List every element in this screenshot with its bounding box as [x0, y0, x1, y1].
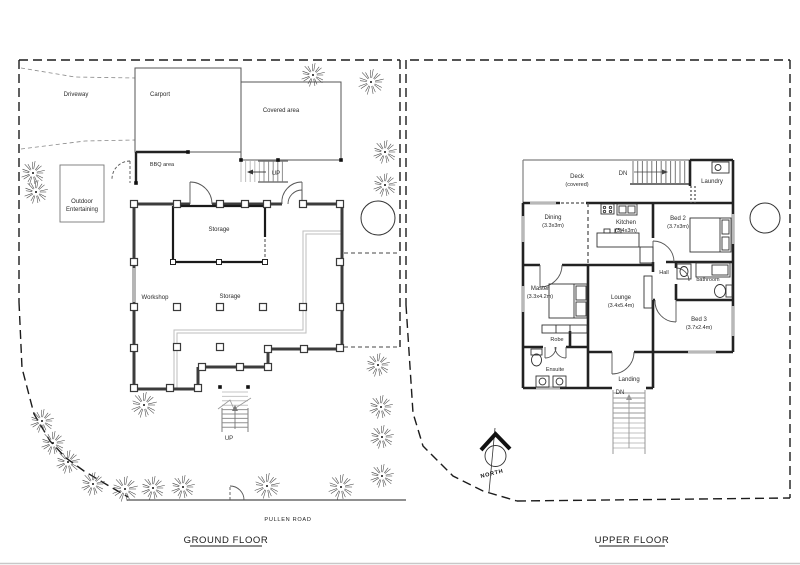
label-dining: Dining [544, 215, 561, 221]
label-deck-line1: Deck [570, 174, 585, 180]
label-landing: Landing [618, 377, 639, 383]
upper-stairs-bottom-extras [613, 390, 645, 454]
outdoor-entertaining-outline [60, 165, 104, 222]
label-carport: Carport [150, 92, 170, 98]
label-ensuite: Ensuite [546, 367, 564, 373]
label-up-top: UP [272, 171, 280, 177]
ground-boundary-connectors [344, 253, 400, 347]
water-tank-upper [750, 203, 780, 233]
floor-plan-drawing: Driveway Carport Covered area BBQ area O… [0, 0, 800, 565]
ground-floor-title: GROUND FLOOR [184, 535, 269, 546]
label-master: Master [531, 286, 549, 292]
upper-stairs-top-extras [630, 170, 690, 185]
label-outdoor-line2: Entertaining [66, 207, 98, 213]
label-kitchen: Kitchen [616, 220, 636, 226]
label-dining-size: (3.3x3m) [542, 223, 564, 229]
label-bed2-size: (3.7x3m) [667, 224, 689, 230]
ground-floor-plan: Driveway Carport Covered area BBQ area O… [19, 60, 406, 546]
label-pullen-road: PULLEN ROAD [264, 517, 311, 523]
floor-plan-sheet: Driveway Carport Covered area BBQ area O… [0, 0, 800, 565]
label-bbq-area: BBQ area [150, 162, 175, 168]
ground-corner-dots [134, 150, 343, 389]
label-dn-bottom: DN [616, 390, 625, 396]
label-bathroom: bathroom [696, 277, 720, 283]
front-gate [230, 486, 244, 500]
north-arrow: NORTH [480, 428, 510, 492]
carport-outline [135, 68, 241, 152]
label-storage-main: Storage [219, 294, 241, 300]
label-robe: Robe [550, 337, 563, 343]
label-north: NORTH [480, 468, 504, 479]
label-lounge-size: (3.4x5.4m) [608, 303, 634, 309]
label-hall: Hall [659, 270, 668, 276]
label-dn-top: DN [619, 171, 628, 177]
label-workshop: Workshop [142, 295, 170, 301]
driveway-edges [21, 68, 135, 149]
upper-floor-title: UPPER FLOOR [595, 535, 670, 546]
label-bed3: Bed 3 [691, 317, 707, 323]
label-storage-room: Storage [208, 227, 230, 233]
label-master-size: (3.3x4.2m) [527, 294, 553, 300]
label-covered-area: Covered area [263, 108, 300, 114]
storage-room-walls [173, 206, 265, 262]
label-driveway: Driveway [64, 92, 89, 98]
label-bed2: Bed 2 [670, 216, 686, 222]
label-laundry: Laundry [701, 179, 723, 185]
label-outdoor-line1: Outdoor [71, 199, 93, 205]
label-deck-line2: (covered) [565, 182, 588, 188]
label-bed3-size: (3.7x2.4m) [686, 325, 712, 331]
covered-area-outline [241, 82, 341, 160]
label-kitchen-size: (3.4x3m) [615, 228, 637, 234]
upper-walls [523, 160, 733, 388]
label-lounge: Lounge [611, 295, 632, 301]
water-tank-ground [361, 201, 395, 235]
label-up-bottom: UP [225, 436, 233, 442]
bbq-gate [112, 161, 130, 183]
upper-floor-plan: NORTH Deck (covered) DN Laundry Dining (… [406, 60, 790, 546]
